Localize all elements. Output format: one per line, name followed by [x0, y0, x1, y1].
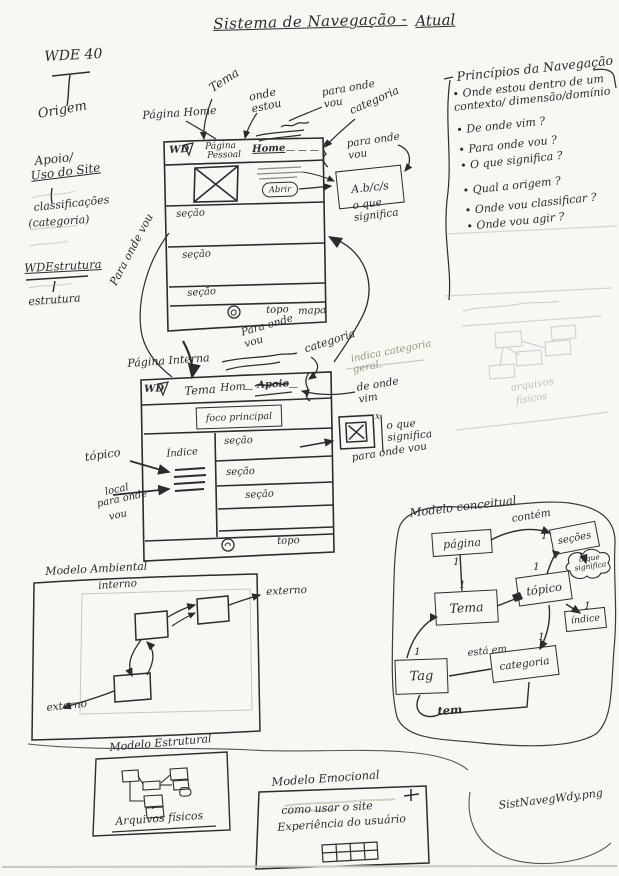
ann-para-onde-vou-4: para onde vou	[351, 441, 428, 464]
cardinality-one: 1	[459, 580, 466, 592]
node-tema-label: Tema	[449, 599, 484, 616]
home-nav-home: Home	[252, 143, 285, 155]
page-title: Sistema de Navegação -	[213, 11, 407, 33]
home-nav-pessoal: Pessoal	[207, 150, 241, 161]
note-para-onde-vou-diagonal: Para onde vou	[108, 212, 156, 288]
interna-page-label: Página Interna	[127, 352, 210, 370]
ambiental-interno: interno	[98, 578, 137, 592]
node-topico-label: tópico	[525, 579, 563, 598]
note-estrutura: estrutura	[28, 292, 81, 308]
page-title-atual: Atual	[415, 12, 456, 30]
home-logo: WD	[169, 144, 189, 156]
node-pagina-label: página	[443, 535, 482, 551]
ann-local-3: vou	[108, 508, 128, 523]
estrutural-title: Modelo Estrutural	[109, 733, 212, 754]
ambiental-externo-esquerda: externo	[46, 699, 88, 715]
interna-nav-home: Hom	[220, 382, 246, 395]
close-box-sup-x: x	[375, 412, 380, 422]
cardinality-one: 1	[533, 562, 540, 574]
note-categoria: (categoria)	[28, 214, 90, 231]
abrir-label: Abrir	[269, 184, 292, 195]
interna-indice: Índice	[166, 446, 198, 460]
node-secoes-label: seções	[557, 529, 592, 546]
file-note: SistNavegWdy.png	[498, 787, 604, 812]
interna-section-label: seção	[226, 466, 255, 478]
interna-nav-tema: Tema	[184, 383, 216, 398]
home-section-label: seção	[176, 208, 205, 221]
interna-dash-2: —	[289, 383, 298, 393]
node-pagina: página	[431, 529, 493, 557]
conceitual-title: Modelo conceitual	[409, 494, 517, 520]
home-page-label: Página Home	[142, 105, 217, 122]
cardinality-one: 1	[538, 632, 545, 644]
ann-topico: tópico	[84, 446, 121, 464]
home-section-label: seção	[187, 286, 216, 299]
cardinality-one: 1	[541, 531, 548, 543]
ann-para-onde-vou-2: para onde vou	[346, 131, 409, 163]
ann-o-que-significa-1: o que significa	[352, 193, 420, 224]
node-secoes: seções	[549, 521, 600, 555]
edge-contem: contém	[511, 508, 552, 526]
breadcrumb-label: A.b/c/s	[351, 179, 390, 196]
node-tema: Tema	[434, 589, 499, 625]
interna-section-label: seção	[245, 489, 274, 502]
emocional-title: Modelo Emocional	[271, 768, 380, 788]
node-tag: Tag	[394, 658, 448, 695]
home-nav-dashes: — — —	[286, 146, 319, 156]
node-indice-label: índice	[570, 613, 600, 627]
ann-categoria-mid: categoria	[303, 328, 357, 356]
abrir-button: Abrir	[262, 181, 299, 197]
principios-list: Onde estou dentro de um contexto/ dimens…	[452, 70, 619, 240]
pencil-arquivos: arquivos	[510, 376, 555, 394]
cardinality-one: 1	[414, 647, 421, 659]
note-wdestrutura: WDEstrutura	[24, 258, 102, 275]
ann-indica-categoria: indica categoria geral.	[350, 338, 438, 376]
faint-pencil-sketch	[456, 301, 608, 430]
pencil-fisicos: físicos	[515, 391, 548, 407]
foco-principal-box: foco principal	[196, 405, 283, 430]
note-origem: Origem	[37, 99, 88, 122]
estrutural-arquivos-fisicos: Arquivos físicos	[115, 810, 204, 828]
interna-logo: WD	[144, 383, 164, 395]
interna-dash-1: —	[244, 385, 253, 395]
note-classificacoes: classificações	[33, 194, 110, 214]
foco-principal-label: foco principal	[206, 410, 273, 423]
ambiental-strokes	[32, 574, 260, 740]
home-section-label: seção	[182, 249, 211, 262]
node-categoria-label: categoria	[499, 655, 550, 673]
cardinality-one: 1	[453, 557, 460, 569]
ann-tema: Tema	[207, 66, 242, 95]
edge-tem: tem	[437, 703, 463, 718]
interna-section-label: seção	[224, 435, 253, 447]
ann-onde-estou: onde estou	[248, 83, 296, 116]
ann-o-que-significa-2: o que significa	[386, 416, 450, 445]
home-footer-mapa: mapa	[298, 305, 326, 317]
interna-footer-topo: topo	[277, 535, 300, 547]
ambiental-title: Modelo Ambiental	[45, 561, 148, 579]
interna-wireframe-strokes	[113, 341, 383, 561]
ambiental-externo-direita: externo	[266, 585, 307, 599]
ann-de-onde-vim: de onde vim	[356, 375, 411, 406]
cloud-o-que-significa: o que significa	[572, 552, 608, 573]
ann-para-onde-vou-3: Para onde vou	[240, 313, 298, 350]
home-wireframe-strokes	[164, 138, 334, 331]
note-wde: WDE 40	[44, 47, 103, 66]
node-tag-label: Tag	[409, 669, 433, 685]
cardinality-one: 1	[584, 601, 591, 613]
interna-nav-apoio: Apoio	[257, 378, 289, 391]
node-topico: tópico	[515, 570, 573, 606]
scanned-sketch-page: Sistema de Navegação - Atual WDE 40 Orig…	[0, 0, 619, 876]
